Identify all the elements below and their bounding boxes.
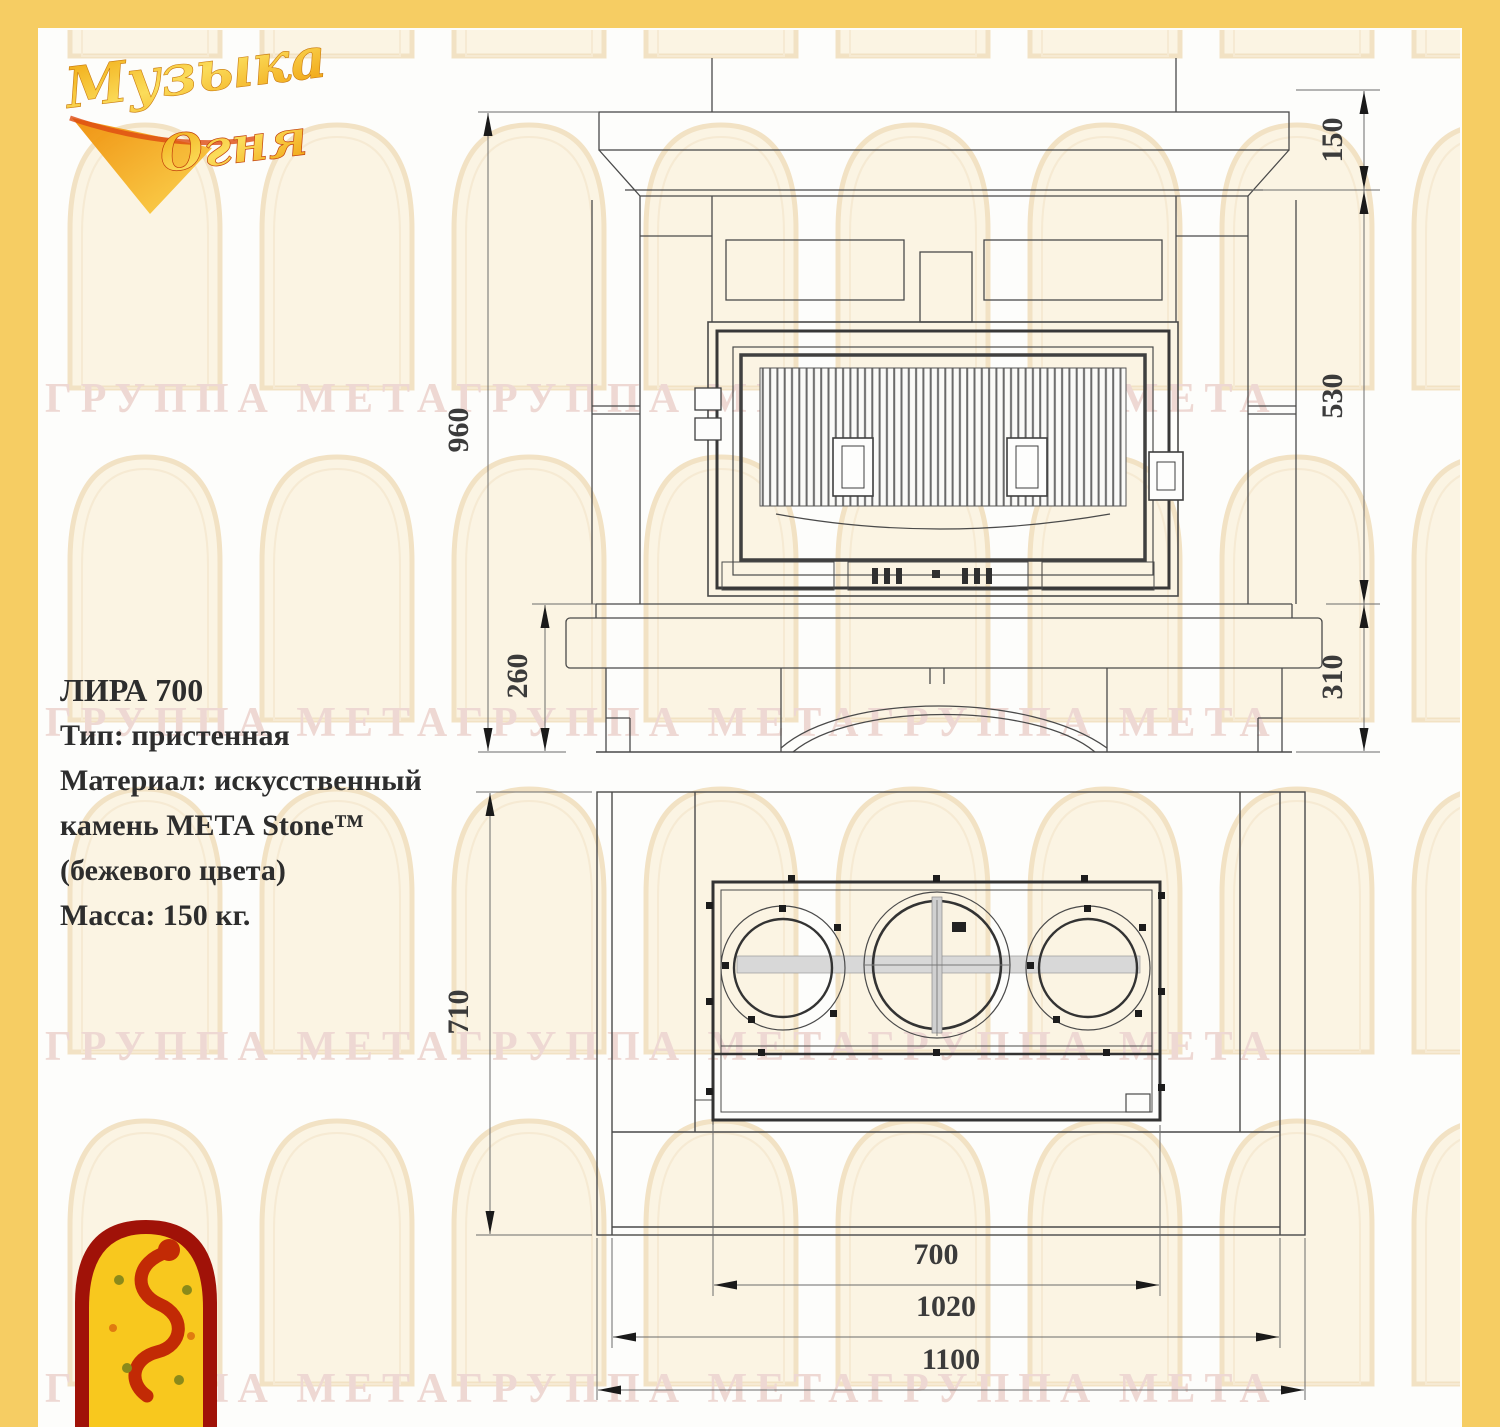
dim-firebox-height: 530 [1316,374,1349,419]
product-weight: Масса: 150 кг. [60,893,500,938]
frame-top-band [0,0,1500,28]
vent-slots [872,568,992,584]
dim-firebox-width: 700 [914,1238,959,1271]
firebox-door [695,322,1183,596]
product-material-1: Материал: искусственный [60,758,500,803]
dim-base-height-left: 260 [501,654,534,699]
dim-depth: 710 [442,990,475,1035]
dim-base-height-right: 310 [1316,655,1349,700]
dim-total-height: 960 [442,408,475,453]
dim-inner-width: 1020 [916,1290,976,1323]
brand-logo-music-of-fire-icon: Музыка Огня [60,24,330,214]
product-material-2: камень МЕТА Stone™ [60,803,500,848]
frame-right-band [1462,0,1500,1427]
product-type: Тип: пристенная [60,713,500,758]
top-plan-view [597,792,1305,1235]
product-info-block: ЛИРА 700 Тип: пристенная Материал: искус… [60,668,500,938]
dim-mantel-height: 150 [1316,118,1349,163]
spec-sheet-page: ГРУППА МЕТАГРУППА МЕТАГРУППА МЕТА ГРУППА… [0,0,1500,1427]
dim-total-width: 1100 [922,1343,980,1376]
dimension-arrows [484,91,1369,1395]
frame-left-band [0,0,38,1427]
grille-slats [760,368,1126,506]
product-material-3: (бежевого цвета) [60,848,500,893]
product-title: ЛИРА 700 [60,668,500,713]
meta-arch-logo-icon [75,1220,217,1427]
brand-word-1: Музыка [60,24,330,122]
brand-word-2: Огня [156,107,310,184]
